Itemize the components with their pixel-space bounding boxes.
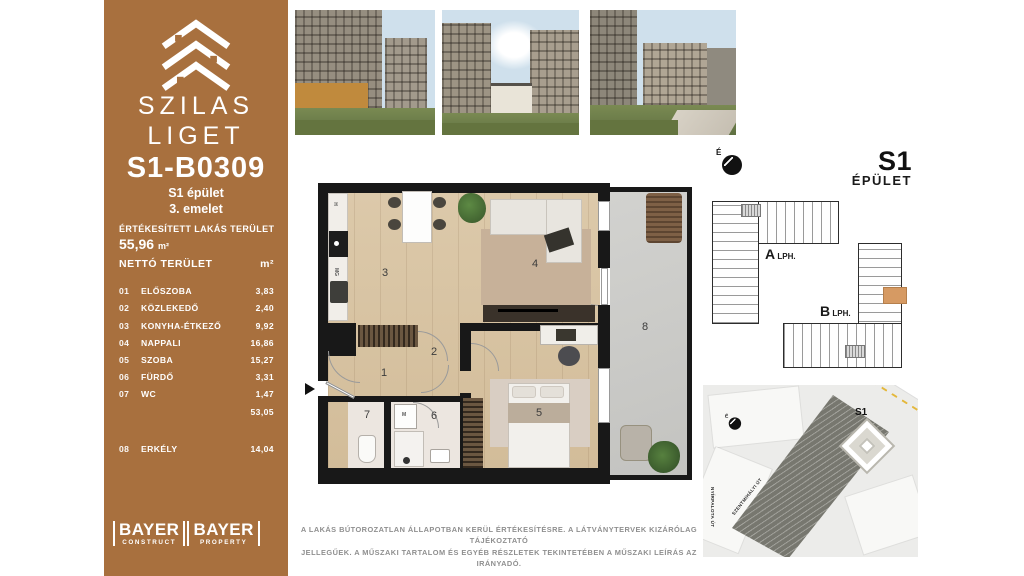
table-row: 04NAPPALI16,86 bbox=[119, 338, 274, 348]
bed-runner: 5 bbox=[508, 403, 570, 423]
stairwell-a bbox=[741, 204, 761, 217]
s1-marker-label: S1 bbox=[855, 407, 867, 418]
table-row: 06FÜRDŐ3,31 bbox=[119, 372, 274, 382]
balcony-wall bbox=[687, 187, 692, 480]
plant bbox=[458, 193, 486, 223]
s1-building-core bbox=[859, 438, 876, 455]
sold-area-value: 55,96 m² bbox=[119, 236, 275, 252]
wall bbox=[318, 183, 610, 193]
wall bbox=[384, 396, 391, 468]
wall bbox=[598, 423, 610, 468]
balcony-wall bbox=[610, 475, 692, 480]
sink bbox=[430, 449, 450, 463]
unit-id: S1-B0309 bbox=[104, 152, 288, 185]
table-row: 02KÖZLEKEDŐ2,40 bbox=[119, 303, 274, 313]
desk-chair bbox=[558, 346, 580, 366]
wing-a-left bbox=[712, 201, 759, 324]
brand-roof-icon bbox=[148, 14, 244, 92]
compass-north-icon: É bbox=[716, 148, 748, 180]
bedroom-wardrobe bbox=[463, 398, 483, 468]
room-number-3: 3 bbox=[382, 267, 388, 279]
table-header-unit: m² bbox=[260, 258, 274, 270]
staircase-b-label: B LPH. bbox=[820, 303, 851, 319]
building-label: ÉPÜLET bbox=[842, 173, 912, 188]
flower-bed bbox=[442, 123, 579, 136]
room-number-4: 4 bbox=[532, 258, 538, 270]
brand-name-line2: LIGET bbox=[104, 122, 288, 152]
compass-label: É bbox=[716, 148, 721, 157]
room-number-7: 7 bbox=[364, 409, 370, 421]
table-row: 01ELŐSZOBA3,83 bbox=[119, 286, 274, 296]
chair bbox=[433, 219, 446, 230]
bayer-property-logo: BAYER PROPERTY bbox=[187, 521, 259, 546]
wall bbox=[460, 323, 471, 371]
building-facade bbox=[530, 30, 579, 115]
dining-table bbox=[402, 191, 432, 243]
room-number-5: 5 bbox=[536, 407, 542, 419]
bedroom-window bbox=[598, 368, 610, 423]
unit-building: S1 épület bbox=[104, 186, 288, 202]
entrance-arrow-icon bbox=[305, 383, 315, 395]
building-facade bbox=[643, 43, 707, 106]
flower-bed bbox=[295, 120, 435, 135]
table-row: 05SZOBA15,27 bbox=[119, 355, 274, 365]
rendering-photo-2 bbox=[442, 10, 579, 135]
street-label: NYÍRPALOTA ÚT bbox=[710, 487, 715, 527]
wall bbox=[598, 183, 610, 201]
laptop bbox=[556, 329, 576, 341]
chair bbox=[388, 197, 401, 208]
bayer-construct-logo: BAYER CONSTRUCT bbox=[113, 521, 185, 546]
disclaimer-text: A LAKÁS BÚTOROZATLAN ÁLLAPOTBAN KERÜL ÉR… bbox=[296, 524, 702, 570]
site-map: S1 É SZENTMIHÁLYI ÚT NYÍRPALOTA ÚT bbox=[703, 385, 918, 557]
kitchen-sink bbox=[330, 281, 348, 303]
glass-pavilion bbox=[491, 83, 532, 113]
sold-area-label: ÉRTÉKESÍTETT LAKÁS TERÜLET bbox=[119, 224, 275, 234]
tv bbox=[498, 309, 558, 312]
building-facade bbox=[707, 48, 736, 106]
table-header: NETTÓ TERÜLET m² bbox=[119, 258, 274, 270]
table-header-label: NETTÓ TERÜLET bbox=[119, 258, 212, 270]
chair bbox=[433, 197, 446, 208]
brand-name-line1: SZILAS bbox=[104, 92, 288, 122]
building-facade bbox=[385, 38, 427, 111]
pillow bbox=[540, 386, 564, 398]
unit-floor: 3. emelet bbox=[104, 202, 288, 218]
chair bbox=[388, 219, 401, 230]
flower-bed bbox=[590, 120, 678, 135]
tv-console bbox=[483, 305, 595, 322]
map-building-block bbox=[845, 476, 918, 555]
washer-label: M bbox=[402, 412, 406, 418]
room-number-8: 8 bbox=[642, 321, 648, 333]
building-facade bbox=[442, 23, 491, 117]
living-window bbox=[598, 201, 610, 231]
table-row: 07WC1,47 bbox=[119, 389, 274, 399]
toilet bbox=[358, 435, 376, 463]
room-number-2: 2 bbox=[431, 346, 437, 358]
wall bbox=[318, 183, 328, 381]
highlighted-unit bbox=[883, 287, 907, 304]
wing-b-bottom bbox=[783, 323, 902, 368]
wall bbox=[318, 468, 610, 484]
lounge-chair bbox=[646, 193, 682, 243]
stairwell-b bbox=[845, 345, 865, 358]
stove-burner bbox=[334, 241, 339, 246]
table-row: 03KONYHA-ÉTKEZŐ9,92 bbox=[119, 321, 274, 331]
shower-drain bbox=[403, 457, 410, 464]
room-number-6: 6 bbox=[431, 410, 437, 422]
table-subtotal-row: 53,05 bbox=[119, 407, 274, 417]
balcony-door bbox=[601, 268, 608, 305]
wall bbox=[598, 231, 610, 268]
developer-logos: BAYER CONSTRUCT BAYER PROPERTY bbox=[113, 521, 260, 546]
staircase-a-label: A LPH. bbox=[765, 246, 796, 262]
pillow bbox=[512, 386, 536, 398]
map-building-block bbox=[709, 386, 804, 447]
room-number-1: 1 bbox=[381, 367, 387, 379]
apartment-floorplan: M 5 H MG bbox=[318, 183, 692, 484]
wall bbox=[598, 305, 610, 368]
sidebar: SZILAS LIGET S1-B0309 S1 épület 3. emele… bbox=[104, 0, 288, 576]
building-key-plan: A LPH. B LPH. bbox=[703, 193, 918, 373]
dishwasher-label: MG bbox=[333, 268, 339, 276]
fridge-label: H bbox=[332, 202, 338, 206]
hall-wardrobe bbox=[358, 325, 418, 347]
datasheet-page: SZILAS LIGET S1-B0309 S1 épület 3. emele… bbox=[0, 0, 1024, 576]
balcony-wall bbox=[610, 187, 692, 192]
table-row-balcony: 08ERKÉLY14,04 bbox=[119, 444, 274, 454]
rendering-photo-1 bbox=[295, 10, 435, 135]
rendering-photo-3 bbox=[590, 10, 736, 135]
